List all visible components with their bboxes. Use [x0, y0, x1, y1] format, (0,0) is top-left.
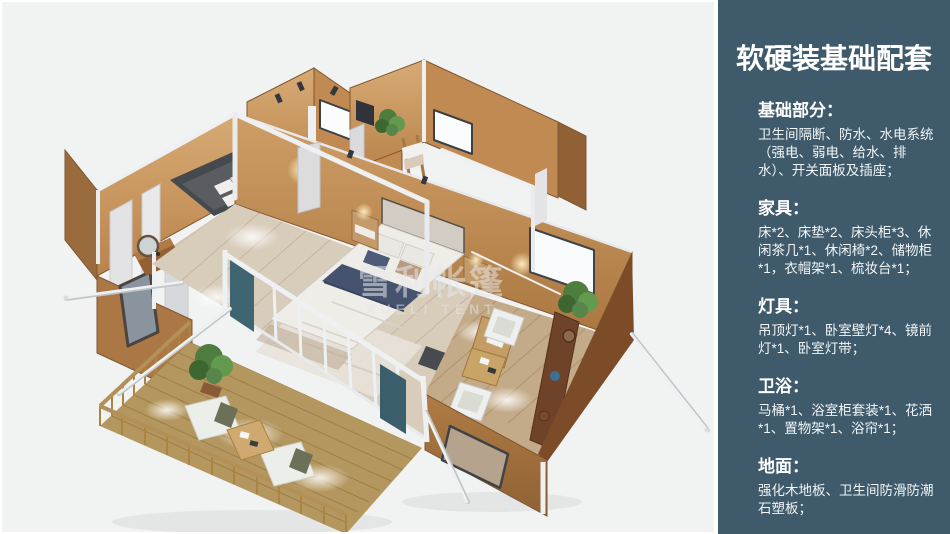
section-basics: 基础部分： 卫生间隔断、防水、水电系统（强电、弱电、给水、排水）、开关面板及插座… — [758, 100, 936, 180]
lounge-curtain — [535, 168, 547, 226]
clay-pot — [539, 411, 549, 421]
spec-sidebar: 软硬装基础配套 基础部分： 卫生间隔断、防水、水电系统（强电、弱电、给水、排水）… — [718, 0, 950, 534]
woven-basket — [563, 330, 575, 342]
section-lighting: 灯具： 吊顶灯*1、卧室壁灯*4、镜前灯*1、卧室灯带； — [758, 296, 936, 358]
section-furniture-body: 床*2、床垫*2、床头柜*3、休闲茶几*1、休闲椅*2、储物柜*1，衣帽架*1、… — [758, 224, 938, 278]
floorplan-render-panel: 雪利帐篷 XUELI TENT — [2, 2, 714, 532]
section-furniture: 家具： 床*2、床垫*2、床头柜*3、休闲茶几*1、休闲椅*2、储物柜*1，衣帽… — [758, 198, 936, 278]
section-lighting-body: 吊顶灯*1、卧室壁灯*4、镜前灯*1、卧室灯带； — [758, 322, 938, 358]
section-furniture-heading: 家具： — [758, 198, 936, 220]
section-basics-body: 卫生间隔断、防水、水电系统（强电、弱电、给水、排水）、开关面板及插座； — [758, 126, 938, 180]
sidebar-title: 软硬装基础配套 — [718, 42, 950, 76]
section-flooring-heading: 地面： — [758, 456, 936, 478]
section-bathroom-heading: 卫浴： — [758, 376, 936, 398]
bath2-end-wall — [558, 122, 586, 210]
watermark-cn: 雪利帐篷 — [358, 264, 506, 302]
blue-pot — [550, 371, 560, 381]
section-bathroom-body: 马桶*1、浴室柜套装*1、花洒*1、置物架*1、浴帘*1； — [758, 402, 938, 438]
floorplan-3d-render: 雪利帐篷 XUELI TENT — [2, 2, 714, 532]
section-basics-heading: 基础部分： — [758, 100, 936, 122]
section-lighting-heading: 灯具： — [758, 296, 936, 318]
spec-sections: 基础部分： 卫生间隔断、防水、水电系统（强电、弱电、给水、排水）、开关面板及插座… — [718, 100, 950, 518]
section-bathroom: 卫浴： 马桶*1、浴室柜套装*1、花洒*1、置物架*1、浴帘*1； — [758, 376, 936, 438]
slide: 雪利帐篷 XUELI TENT 软硬装基础配套 基础部分： 卫生间隔断、防水、水… — [0, 0, 950, 534]
section-flooring: 地面： 强化木地板、卫生间防滑防潮石塑板； — [758, 456, 936, 518]
watermark: 雪利帐篷 XUELI TENT — [358, 264, 506, 317]
section-flooring-body: 强化木地板、卫生间防滑防潮石塑板； — [758, 482, 938, 518]
watermark-en: XUELI TENT — [366, 301, 498, 317]
